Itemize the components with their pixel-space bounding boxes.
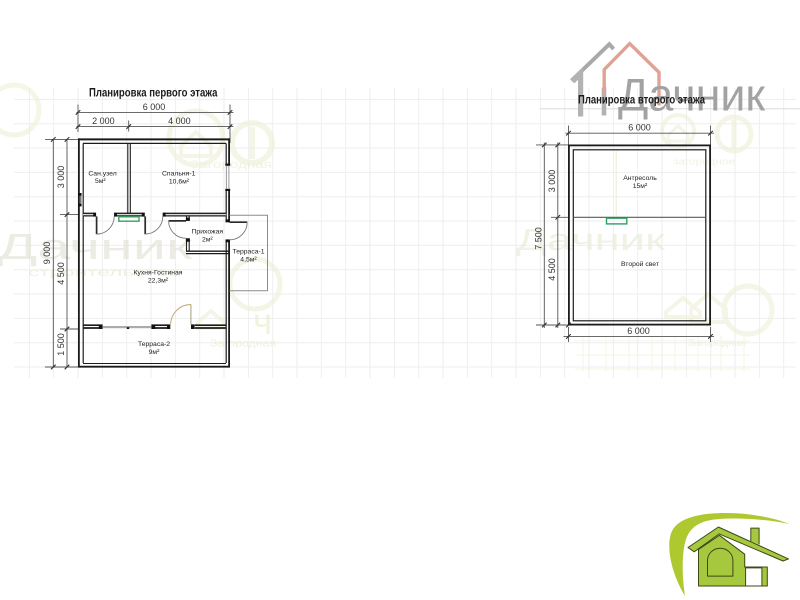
svg-text:ч: ч	[253, 301, 272, 342]
svg-text:1 500: 1 500	[56, 333, 66, 356]
svg-text:Планировка второго этажа: Планировка второго этажа	[578, 93, 705, 107]
svg-text:15м²: 15м²	[633, 183, 648, 190]
svg-text:10,6м²: 10,6м²	[169, 178, 190, 185]
svg-text:Спальня-1: Спальня-1	[162, 170, 196, 177]
svg-text:Загородная: Загородная	[190, 159, 272, 171]
svg-text:3 000: 3 000	[56, 166, 66, 189]
svg-text:2м²: 2м²	[202, 236, 213, 243]
svg-text:4 000: 4 000	[168, 116, 191, 126]
svg-text:6 000: 6 000	[143, 102, 166, 112]
svg-text:7 500: 7 500	[534, 227, 544, 250]
svg-text:Терраса-2: Терраса-2	[138, 341, 170, 348]
svg-text:22,3м²: 22,3м²	[148, 277, 169, 284]
svg-text:3 000: 3 000	[547, 170, 557, 193]
svg-text:Загородная: Загородная	[688, 337, 746, 349]
svg-text:Терраса-1: Терраса-1	[232, 249, 264, 256]
svg-text:Второй свет: Второй свет	[621, 260, 659, 268]
svg-text:Кухня-Гостиная: Кухня-Гостиная	[134, 269, 183, 276]
svg-text:Антресоль: Антресоль	[623, 175, 657, 182]
svg-text:2 000: 2 000	[92, 116, 115, 126]
svg-text:загородное: загородное	[673, 157, 735, 167]
svg-text:Сан.узел: Сан.узел	[88, 170, 116, 177]
svg-text:9 000: 9 000	[42, 242, 52, 265]
svg-text:4 500: 4 500	[547, 258, 557, 281]
svg-text:6 000: 6 000	[627, 326, 650, 336]
svg-text:4 500: 4 500	[56, 262, 66, 285]
svg-text:4,5м²: 4,5м²	[240, 256, 257, 263]
svg-text:5м²: 5м²	[95, 178, 106, 185]
svg-text:Планировка первого этажа: Планировка первого этажа	[89, 86, 218, 100]
svg-text:Прихожая: Прихожая	[192, 228, 224, 235]
svg-text:6 000: 6 000	[628, 123, 651, 133]
svg-text:9м²: 9м²	[149, 349, 160, 356]
